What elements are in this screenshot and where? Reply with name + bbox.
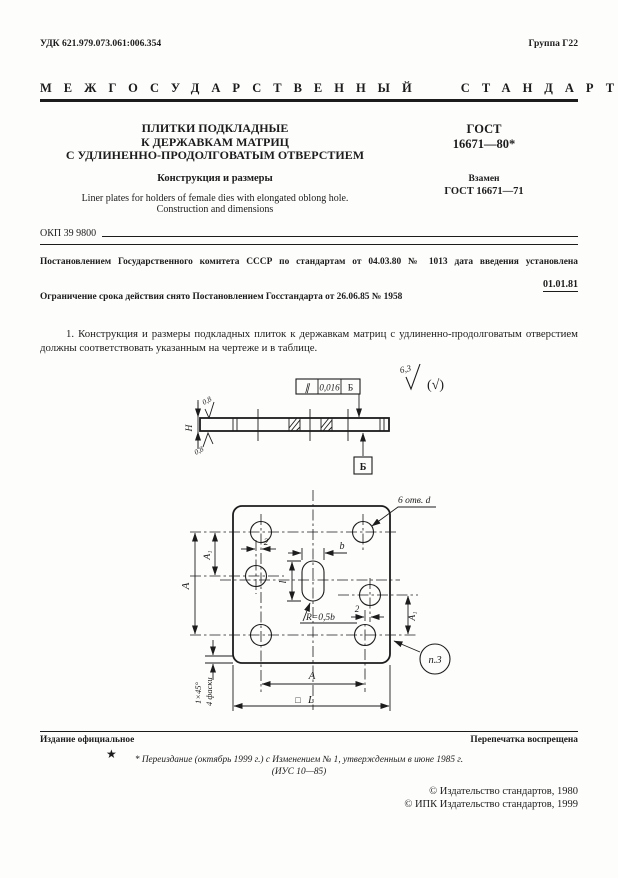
dim-slot-length-label: l (278, 580, 289, 583)
datum-flag: Б (354, 433, 372, 474)
chamfer-size-label: 1×45° (193, 682, 203, 704)
header-rule (40, 99, 578, 102)
side-view: Н 0,8 0,8 ∥ 0,016 Б Б (185, 379, 389, 474)
surface-roughness-note: 6,3 (√) (399, 363, 445, 393)
tolerance-frame: ∥ 0,016 Б (296, 379, 360, 417)
title-line-1: ПЛИТКИ ПОДКЛАДНЫЕ (40, 122, 390, 136)
title-english-line-2: Construction and dimensions (40, 204, 390, 216)
radius-note: R=0,5b (305, 613, 335, 623)
effective-date: 01.01.81 (543, 279, 578, 292)
plate-section-outline (200, 418, 389, 431)
title-line-3: С УДЛИНЕННО-ПРОДОЛГОВАТЫМ ОТВЕРСТИЕМ (40, 149, 390, 163)
title-bottom-rule (40, 244, 578, 245)
tolerance-value: 0,016 (319, 383, 340, 393)
tolerance-datum-ref: Б (348, 384, 353, 394)
roughness-value: 6,3 (399, 363, 413, 375)
dim-2-left-label: 2 (264, 537, 269, 547)
document-codes-row: УДК 621.979.073.061:006.354 Группа Г22 (40, 38, 578, 49)
gost-number: 16671—80* (390, 137, 578, 152)
center-lines (190, 490, 418, 710)
holes-note-leader (372, 507, 436, 526)
okp-row: ОКП 39 9800 (40, 228, 578, 239)
parallelism-icon: ∥ (305, 383, 311, 394)
plate-section-edges (233, 418, 384, 431)
dim-2-right-label: 2 (355, 604, 360, 614)
replaces-label: Взамен (390, 173, 578, 186)
official-edition-label: Издание официальное (40, 735, 134, 745)
dim-l-overall-label: L (307, 694, 314, 706)
section-hatching (289, 418, 332, 431)
subtitle: Конструкция и размеры (40, 173, 390, 184)
gost-label: ГОСТ (390, 122, 578, 137)
plan-view: A A₁ 2 b l R=0,5b 6 отв. d 2 A₁ A □ L 1×… (180, 490, 450, 711)
footer-row: Издание официальное Перепечатка воспреще… (40, 735, 578, 745)
copyright-block: © Издательство стандартов, 1980 © ИПК Из… (404, 786, 578, 811)
copyright-line-1: © Издательство стандартов, 1980 (404, 786, 578, 799)
reprint-notice-label: Перепечатка воспрещена (470, 735, 578, 745)
dim-a-bottom-label: A (308, 670, 316, 682)
roughness-alt-mark: (√) (427, 378, 444, 393)
chamfer-count-label: 4 фаски (204, 677, 214, 706)
udk-code: УДК 621.979.073.061:006.354 (40, 38, 161, 49)
title-line-2: К ДЕРЖАВКАМ МАТРИЦ (40, 136, 390, 150)
title-english: Liner plates for holders of female dies … (40, 193, 390, 216)
note-ref-leader (394, 641, 420, 652)
gost-document-page: УДК 621.979.073.061:006.354 Группа Г22 М… (0, 0, 618, 878)
copyright-line-2: © ИПК Издательство стандартов, 1999 (404, 799, 578, 812)
square-symbol-icon: □ (295, 695, 301, 705)
decree-line-1: Постановлением Государственного комитета… (40, 257, 578, 267)
holes-note: 6 отв. d (398, 496, 431, 506)
okp-rule (102, 236, 578, 237)
dim-b-label: b (340, 541, 345, 552)
thickness-label: Н (185, 423, 195, 432)
roughness-top-value: 0,8 (201, 394, 214, 407)
paragraph-1: 1. Конструкция и размеры подкладных плит… (40, 327, 578, 355)
revision-note: * Переиздание (октябрь 1999 г.) с Измене… (60, 755, 538, 778)
dim-a1-left-label: A₁ (203, 550, 213, 560)
standard-type-heading: МЕЖГОСУДАРСТВЕННЫЙ СТАНДАРТ (40, 81, 578, 96)
footer-rule (40, 731, 578, 732)
replaces-number: ГОСТ 16671—71 (390, 186, 578, 197)
revision-note-line-1: * Переиздание (октябрь 1999 г.) с Измене… (60, 755, 538, 767)
roughness-bottom-check-icon (203, 433, 213, 447)
decree-line-2: Ограничение срока действия снято Постано… (40, 292, 578, 302)
title-left-column: ПЛИТКИ ПОДКЛАДНЫЕ К ДЕРЖАВКАМ МАТРИЦ С У… (40, 122, 390, 216)
title-right-column: ГОСТ 16671—80* Взамен ГОСТ 16671—71 (390, 122, 578, 216)
technical-drawing: 6,3 (√) Н 0,8 0,8 ∥ 0,016 Б (0, 358, 618, 732)
plate-outline (233, 506, 390, 663)
okp-code: ОКП 39 9800 (40, 228, 96, 239)
datum-label: Б (360, 462, 367, 473)
revision-note-line-2: (ИУС 10—85) (60, 767, 538, 779)
title-english-line-1: Liner plates for holders of female dies … (40, 193, 390, 205)
title-block: ПЛИТКИ ПОДКЛАДНЫЕ К ДЕРЖАВКАМ МАТРИЦ С У… (40, 122, 578, 216)
note-ref-label: п.3 (428, 655, 441, 666)
section-axis-ticks (258, 409, 348, 441)
group-code: Группа Г22 (529, 38, 578, 49)
dim-a1-right-label: A₁ (408, 611, 418, 621)
dim-a-left-label: A (180, 582, 192, 590)
